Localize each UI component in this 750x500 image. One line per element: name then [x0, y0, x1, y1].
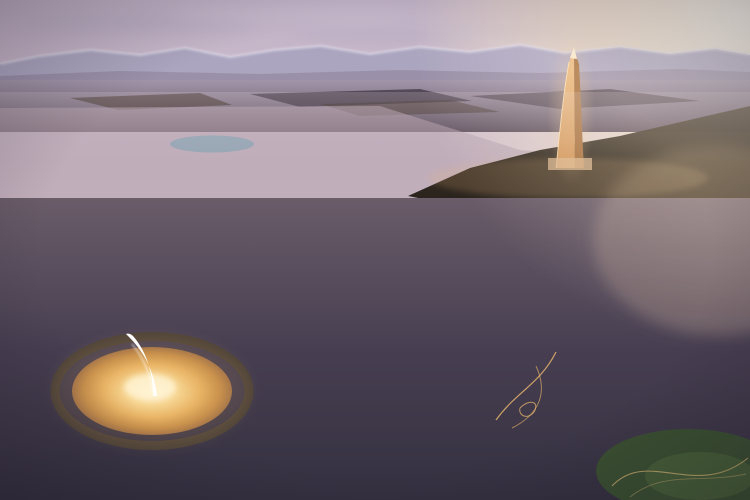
city-scene: [0, 0, 750, 500]
aerial-city-photo: [0, 0, 750, 500]
vignette: [0, 0, 750, 500]
